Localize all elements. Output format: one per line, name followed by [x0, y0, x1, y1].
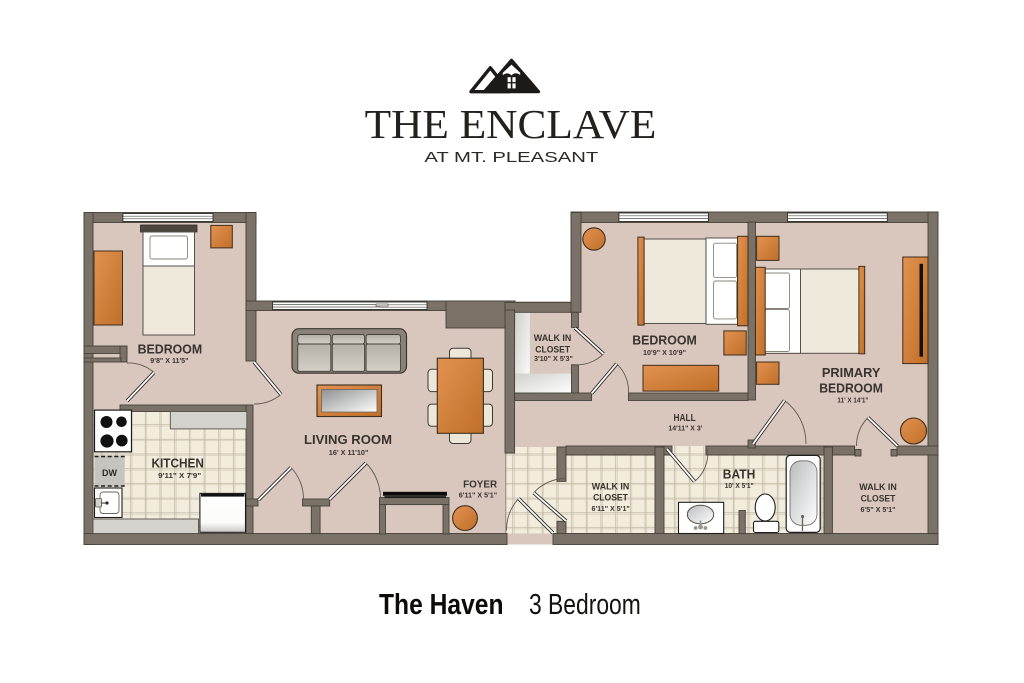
svg-text:CLOSET: CLOSET — [593, 493, 628, 504]
svg-text:CLOSET: CLOSET — [861, 494, 896, 505]
svg-text:10'9" X 10'9": 10'9" X 10'9" — [643, 348, 686, 357]
svg-text:BEDROOM: BEDROOM — [138, 342, 203, 357]
svg-text:AT MT. PLEASANT: AT MT. PLEASANT — [424, 150, 598, 166]
svg-text:16' X 11'10": 16' X 11'10" — [329, 448, 369, 457]
svg-text:14'11" X 3': 14'11" X 3' — [668, 423, 702, 432]
svg-text:10' X 5'1": 10' X 5'1" — [725, 481, 754, 490]
svg-text:3'10" X 5'3": 3'10" X 5'3" — [534, 356, 573, 363]
svg-text:BATH: BATH — [723, 467, 756, 482]
svg-text:6'11" X 5'1": 6'11" X 5'1" — [592, 506, 630, 513]
svg-text:9'11" X 7'9": 9'11" X 7'9" — [158, 471, 201, 480]
svg-text:PRIMARY: PRIMARY — [822, 365, 881, 380]
svg-text:WALK IN: WALK IN — [859, 482, 897, 493]
svg-text:3 Bedroom: 3 Bedroom — [529, 589, 641, 621]
svg-text:BEDROOM: BEDROOM — [819, 380, 883, 395]
svg-text:WALK IN: WALK IN — [592, 481, 630, 492]
svg-text:BEDROOM: BEDROOM — [632, 333, 697, 348]
svg-text:FOYER: FOYER — [463, 478, 497, 490]
svg-text:The Haven: The Haven — [379, 589, 504, 621]
svg-text:KITCHEN: KITCHEN — [152, 456, 204, 471]
svg-text:WALK IN: WALK IN — [534, 333, 572, 344]
svg-text:DW: DW — [102, 468, 117, 478]
svg-text:6'5" X 5'1": 6'5" X 5'1" — [861, 507, 896, 514]
svg-text:9'8" X 11'5": 9'8" X 11'5" — [150, 356, 189, 365]
svg-text:LIVING ROOM: LIVING ROOM — [304, 432, 392, 447]
svg-text:6'11" X 5'1": 6'11" X 5'1" — [459, 490, 498, 499]
svg-text:THE ENCLAVE: THE ENCLAVE — [365, 101, 657, 147]
svg-text:HALL: HALL — [674, 412, 697, 424]
svg-text:CLOSET: CLOSET — [535, 344, 570, 355]
svg-text:11' X 14'1": 11' X 14'1" — [837, 395, 868, 404]
